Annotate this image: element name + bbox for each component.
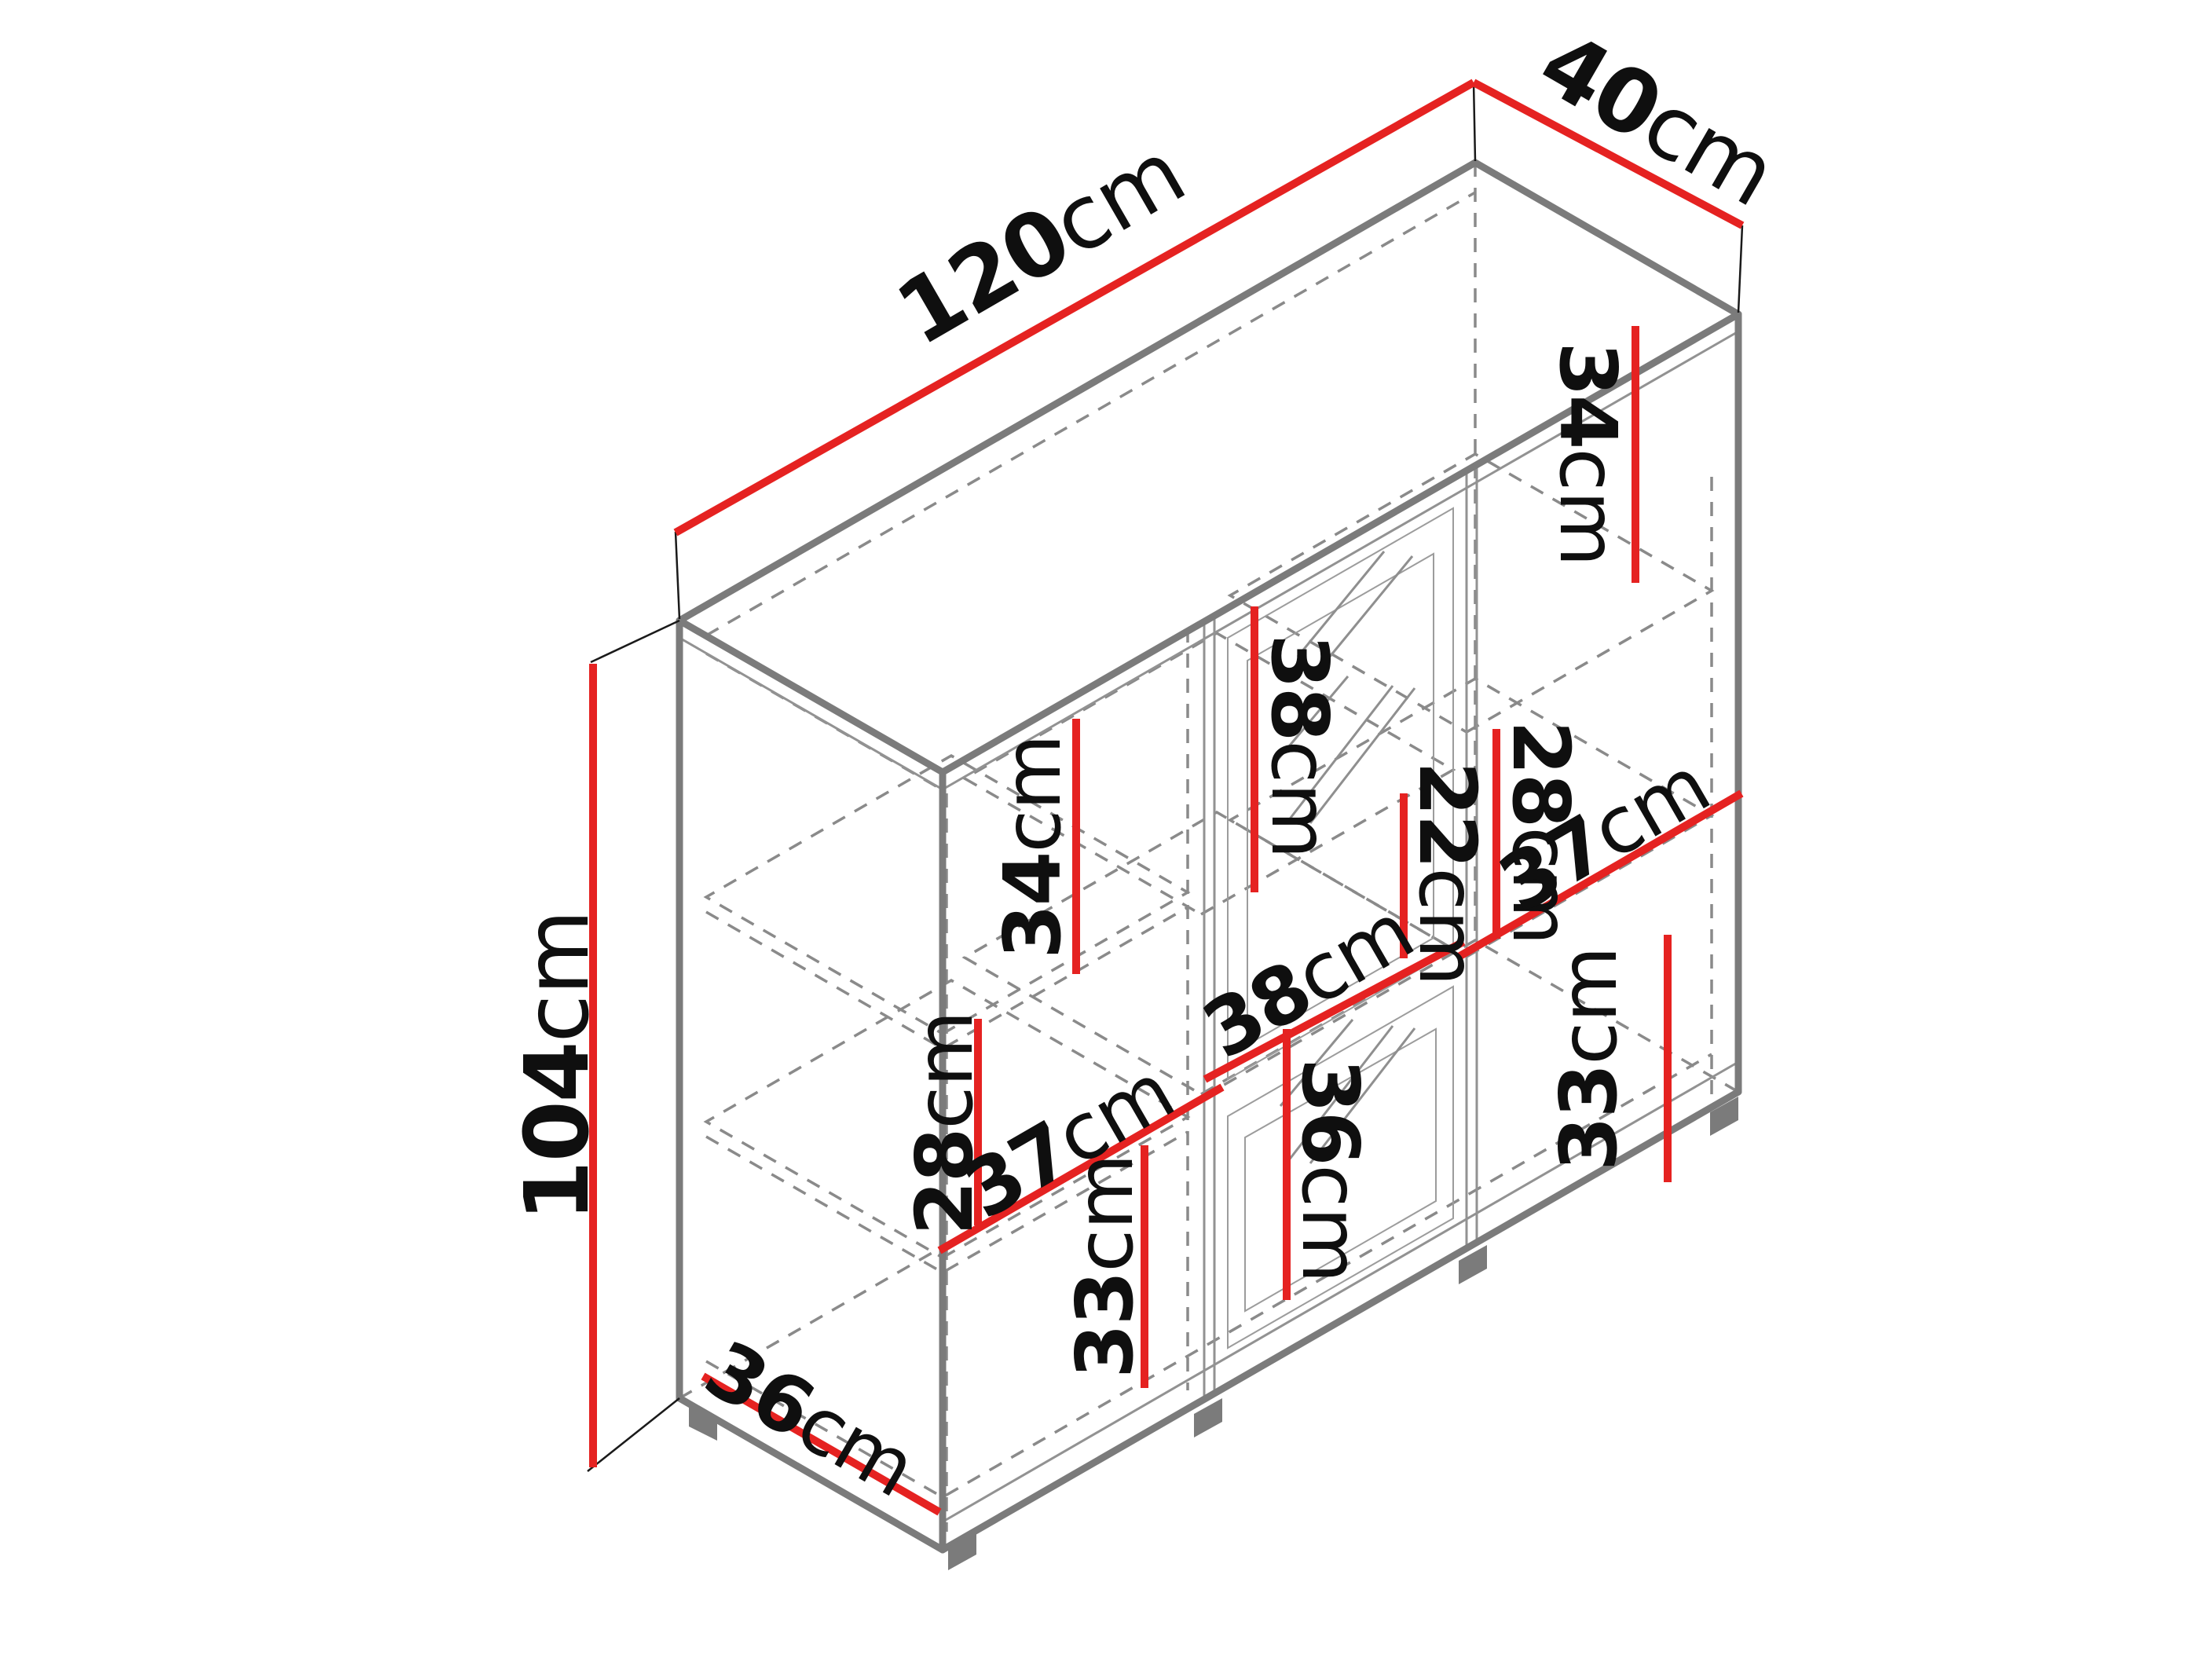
dimension-label-36-center: 36cm [1285, 1058, 1377, 1283]
dimension-label-38-center: 38cm [1254, 634, 1346, 859]
dimension-label-33-right: 33cm [1543, 947, 1635, 1171]
dimension-label-36-bottom: 36cm [690, 1323, 931, 1514]
dimension-label-34-right: 34cm [1543, 342, 1635, 566]
dimension-line-120 [676, 82, 1474, 533]
diagram-canvas: 120cm 40cm 104cm 34cm 38cm 34cm 28cm 22c… [0, 0, 2212, 1659]
dimension-label-33-left: 33cm [1059, 1154, 1151, 1379]
dimension-label-38-center-width: 38cm [1188, 884, 1428, 1076]
furniture-dimension-diagram: 120cm 40cm 104cm 34cm 38cm 34cm 28cm 22c… [0, 0, 2212, 1659]
dimension-label-104: 104cm [507, 910, 609, 1221]
dimension-label-34-left: 34cm [987, 734, 1079, 959]
dimension-label-40: 40cm [1523, 13, 1793, 227]
